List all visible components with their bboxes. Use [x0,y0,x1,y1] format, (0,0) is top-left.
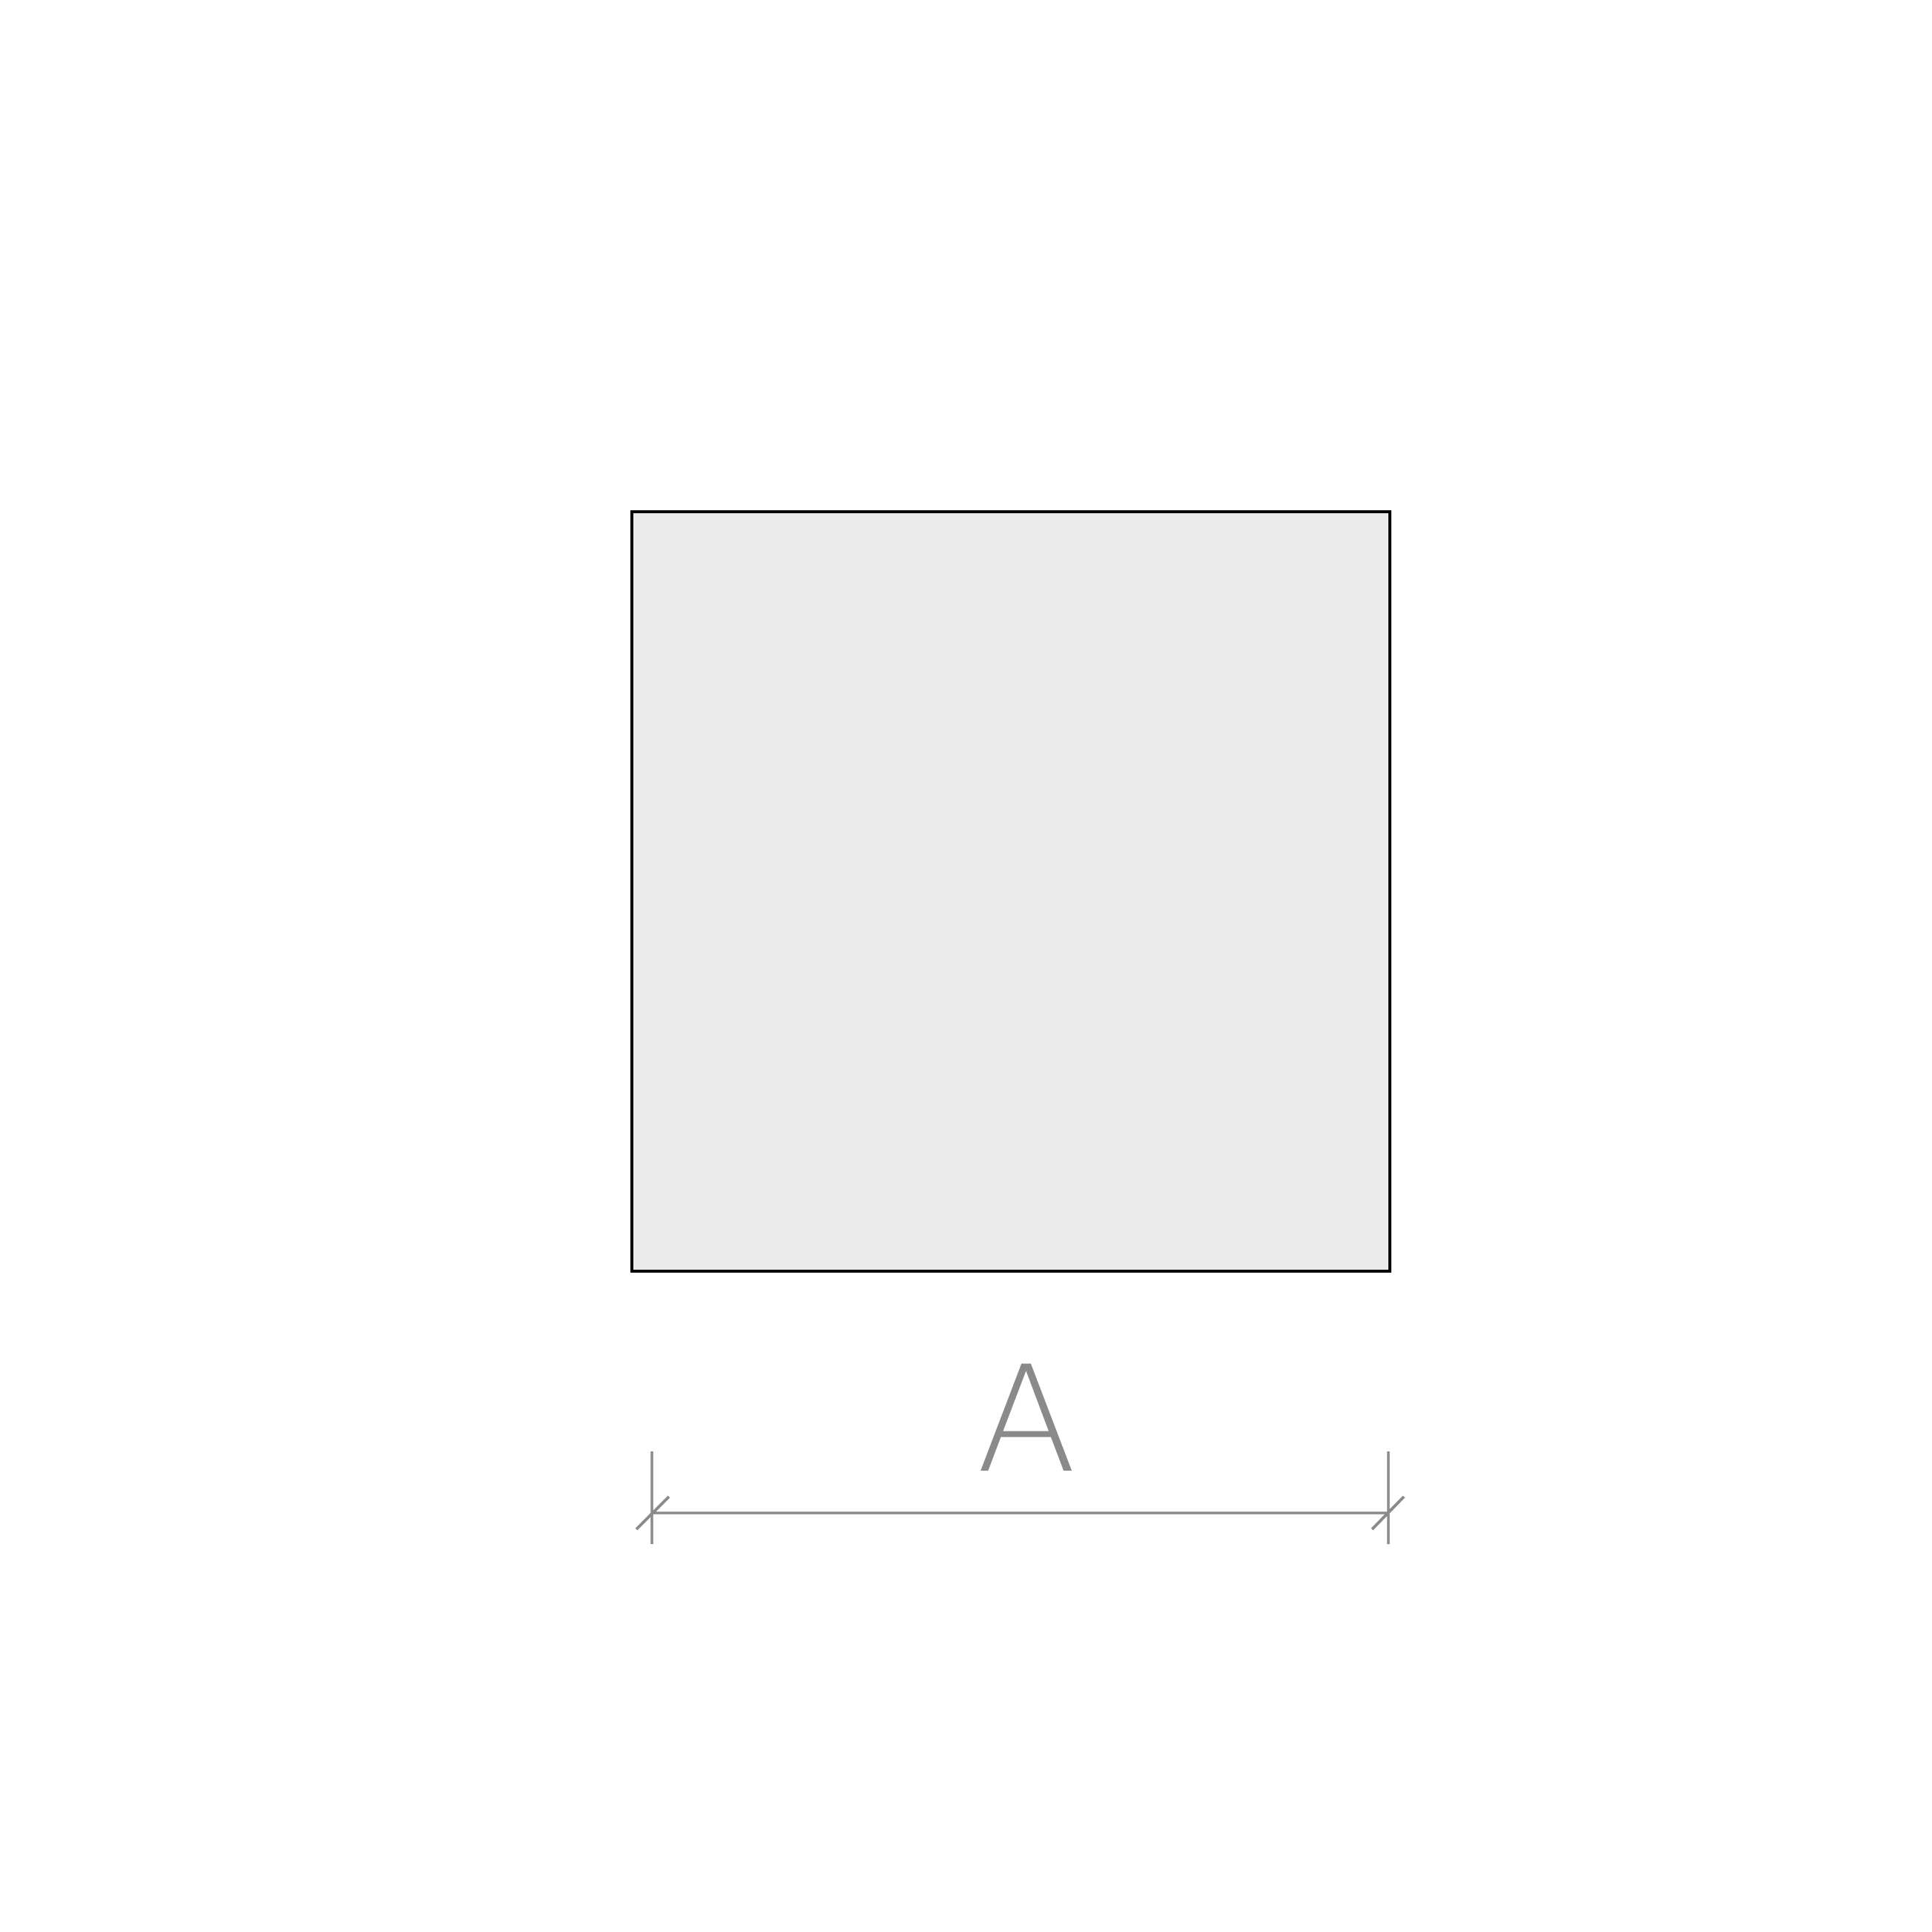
dimension-label: A [976,1334,1076,1506]
square-profile-shape [632,512,1390,1271]
diagram-canvas: A [0,0,1932,1932]
section-diagram: A [0,0,1932,1932]
